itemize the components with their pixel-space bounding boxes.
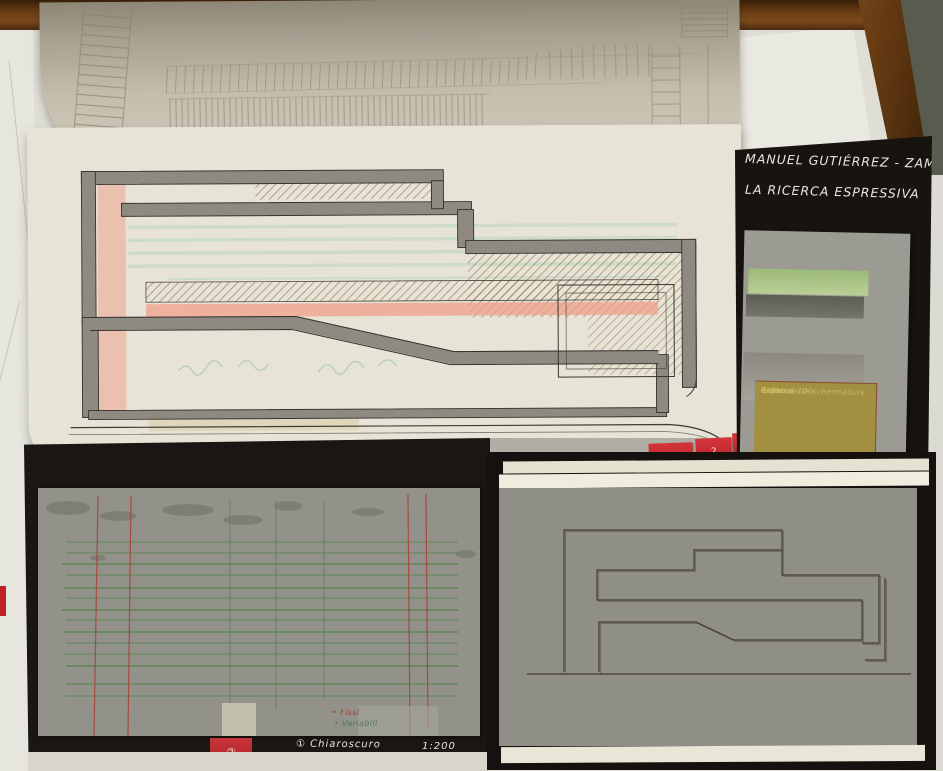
grid-study-board: • Fissi • Variabili ① Chiaroscuro ② Gril…: [24, 438, 490, 770]
dark-marker-band: [746, 294, 864, 318]
main-tracing-sheet: [27, 124, 743, 472]
grid-study-sheet: • Fissi • Variabili: [38, 488, 480, 736]
outline-shadow-lines: [566, 532, 887, 674]
red-vertical-lines: [94, 494, 428, 736]
tan-hatch-right-room-lower: [588, 316, 692, 375]
green-horizontal-lines: [62, 542, 458, 696]
color-study-sheet: Grilla al 100 Colore aspetto Ritmo delle…: [740, 230, 911, 467]
paper-edge-strip: [499, 471, 929, 488]
caption-chiaroscuro: ① Chiaroscuro: [296, 739, 381, 751]
salmon-band-long: [146, 302, 658, 318]
red-tab-edge: [0, 586, 6, 616]
grid-drawing: [38, 488, 480, 736]
lower-wing-wall: [90, 321, 658, 360]
tan-hatch-top-wing: [255, 183, 439, 200]
green-marker-band: [748, 268, 868, 296]
floor-plan-drawing: [27, 124, 743, 472]
author-name: MANUEL GUTIÉRREZ - ZAMORA J.: [745, 151, 943, 172]
note-line-4: Ritmo delle schermature: [761, 386, 866, 398]
plan-outline-drawing: [499, 488, 917, 746]
project-title: LA RICERCA ESPRESSIVA: [745, 182, 920, 202]
notes-panel: Grilla al 100 Colore aspetto Ritmo delle…: [754, 381, 878, 460]
paper-under-grid-board: [28, 752, 488, 771]
photo-of-architecture-drawings: 3 2 1 MANUEL GUTIÉRREZ - ZAMORA J. LA RI…: [0, 0, 943, 771]
legend-fissi: • Fissi: [332, 708, 359, 717]
tan-hatch-long-band: [146, 280, 658, 303]
paper-edge-strip: [501, 745, 925, 763]
tape-patch: [222, 703, 256, 736]
scale-label: 1:200: [422, 741, 456, 752]
elevation-sheet: [499, 488, 917, 746]
elevation-board: [487, 452, 936, 770]
green-scribble-notes: [178, 360, 396, 375]
legend-variabili: • Variabili: [334, 719, 378, 728]
charcoal-smudges: [46, 501, 476, 561]
